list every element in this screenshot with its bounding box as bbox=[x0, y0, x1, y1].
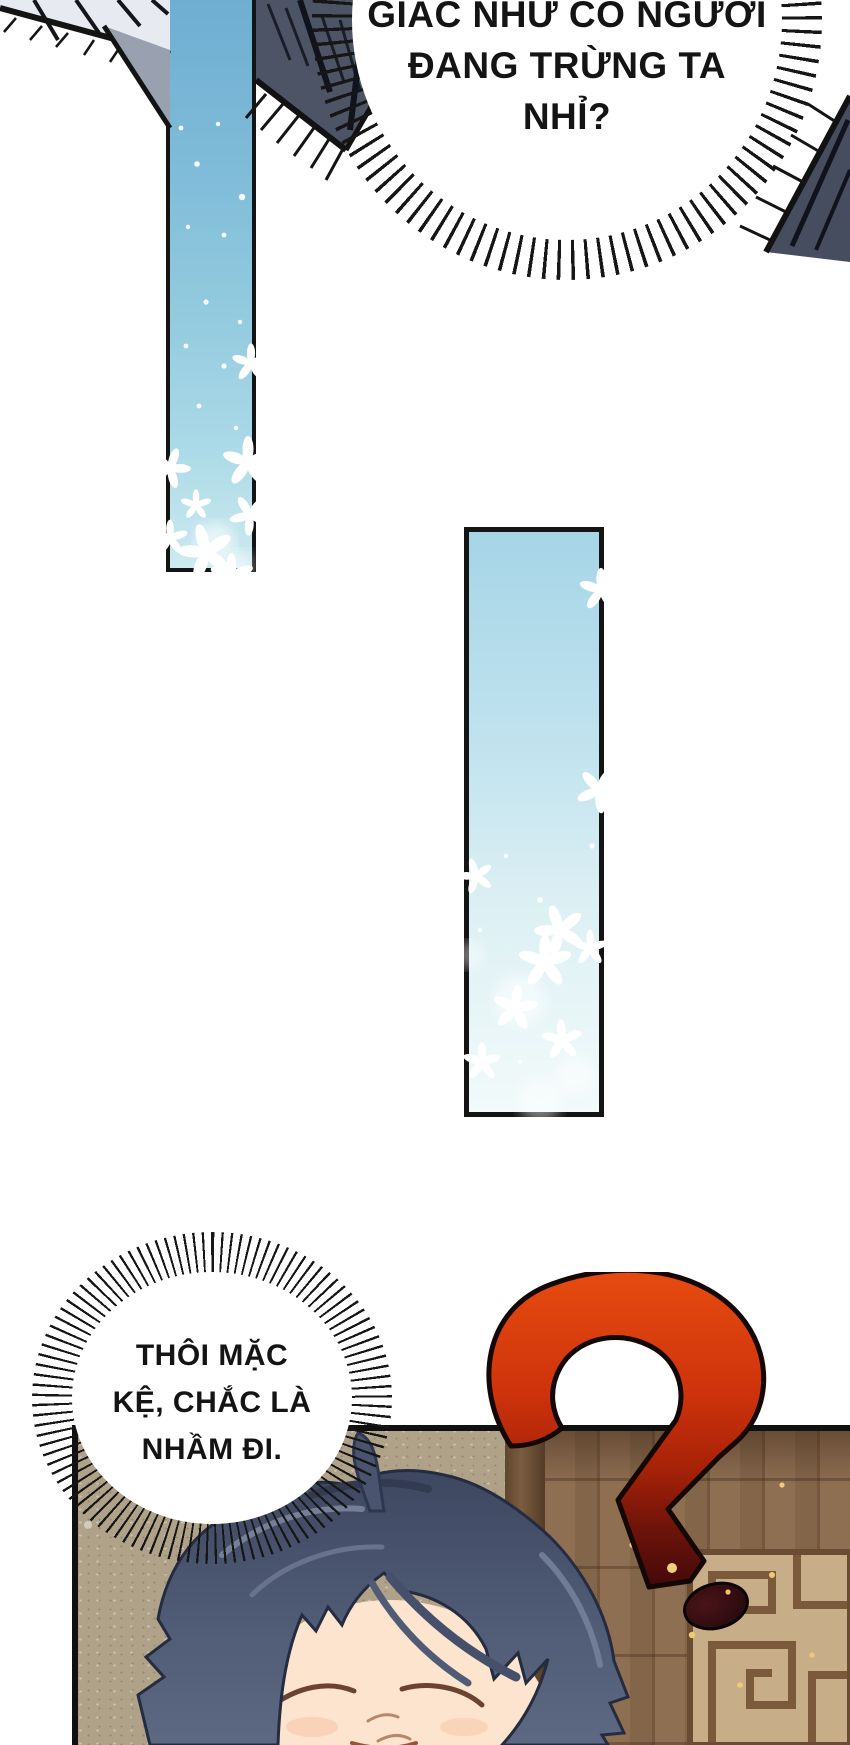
sparkles bbox=[179, 122, 246, 430]
sky-strip-middle-decor bbox=[430, 540, 630, 1130]
comic-page: GIÁC NHƯ CÓ NGƯỜI ĐANG TRỪNG TA NHỈ? bbox=[0, 0, 850, 1745]
bubble-line: ĐANG TRỪNG TA bbox=[312, 40, 822, 91]
bubble-line: NHỈ? bbox=[312, 91, 822, 142]
white-flowers bbox=[143, 344, 279, 601]
bubble-text: THÔI MẶC KỆ, CHẮC LÀ NHẦM ĐI. bbox=[32, 1332, 392, 1473]
question-mark-dot bbox=[679, 1576, 752, 1632]
question-mark bbox=[455, 1272, 790, 1632]
bubble-text: GIÁC NHƯ CÓ NGƯỜI ĐANG TRỪNG TA NHỈ? bbox=[312, 0, 822, 142]
bubble-line: NHẦM ĐI. bbox=[32, 1426, 392, 1473]
sparkle bbox=[667, 1563, 677, 1573]
bubble-line: GIÁC NHƯ CÓ NGƯỜI bbox=[312, 0, 822, 40]
sparkle bbox=[725, 1589, 730, 1594]
speech-bubble-top: GIÁC NHƯ CÓ NGƯỜI ĐANG TRỪNG TA NHỈ? bbox=[312, 0, 822, 280]
speech-bubble-bottom: THÔI MẶC KỆ, CHẮC LÀ NHẦM ĐI. bbox=[32, 1232, 392, 1564]
question-mark-hook bbox=[489, 1272, 764, 1587]
bubble-line: KỆ, CHẮC LÀ bbox=[32, 1379, 392, 1426]
sky-strip-left-decor bbox=[140, 100, 280, 600]
bubble-line: THÔI MẶC bbox=[32, 1332, 392, 1379]
